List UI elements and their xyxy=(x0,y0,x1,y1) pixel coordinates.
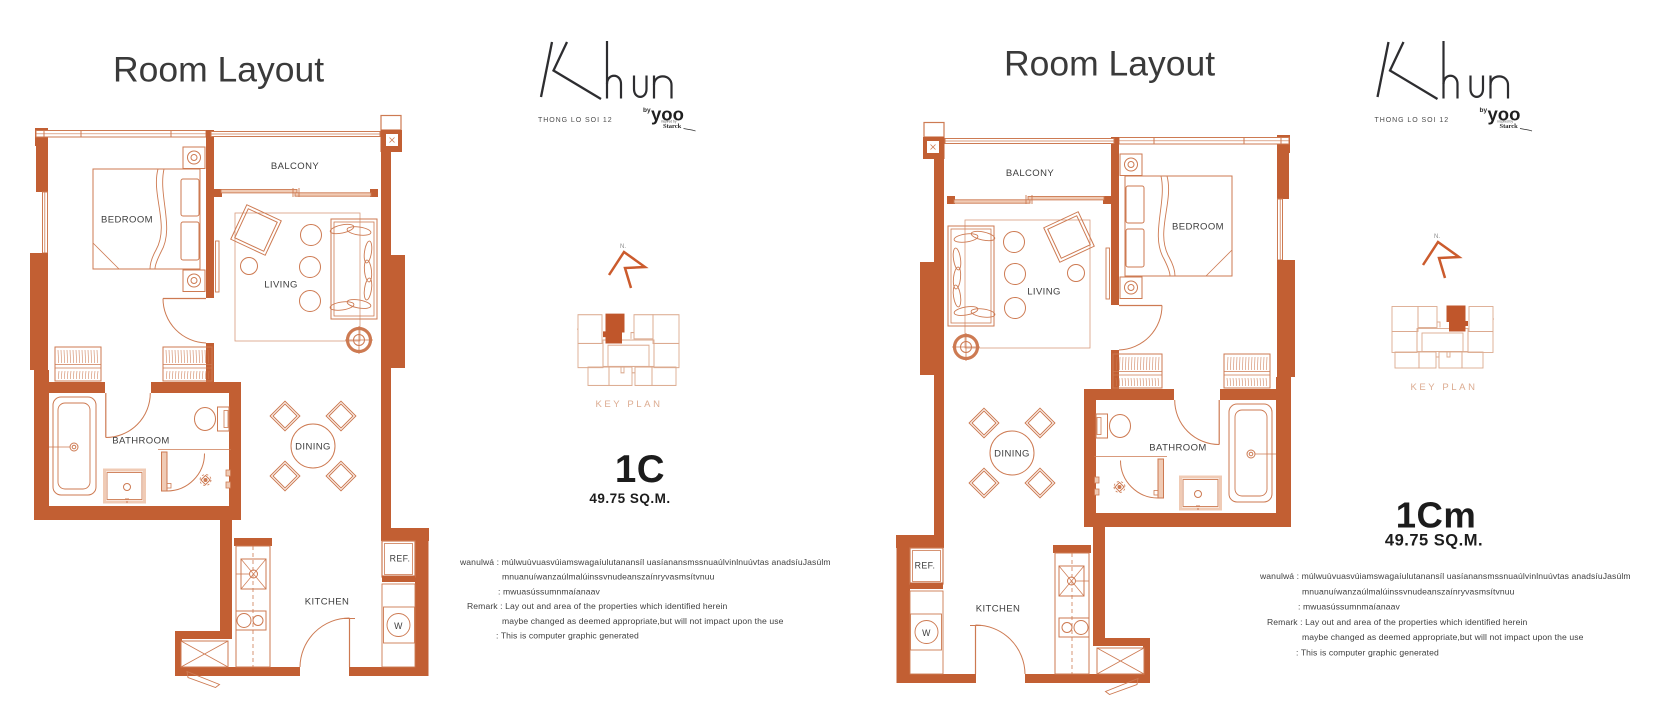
svg-text:REF.: REF. xyxy=(390,554,411,564)
svg-text:49.75 SQ.M.: 49.75 SQ.M. xyxy=(1385,532,1483,550)
svg-text:N.: N. xyxy=(1434,234,1440,240)
svg-text:BATHROOM: BATHROOM xyxy=(1149,443,1206,454)
svg-text:KEY PLAN: KEY PLAN xyxy=(1410,382,1477,393)
svg-text:by: by xyxy=(643,107,651,114)
svg-text:Room Layout: Room Layout xyxy=(113,50,324,90)
svg-text:1Cm: 1Cm xyxy=(1396,495,1477,536)
svg-text:Room Layout: Room Layout xyxy=(1004,44,1215,84)
svg-text:KEY PLAN: KEY PLAN xyxy=(595,399,662,410)
svg-text:Starck: Starck xyxy=(663,123,682,130)
svg-text:W: W xyxy=(394,621,403,631)
svg-text:wanulwá : múlwuùvuasvúiamswaga: wanulwá : múlwuùvuasvúiamswagaíulutanans… xyxy=(459,557,831,567)
svg-text:LIVING: LIVING xyxy=(264,280,298,291)
svg-text:Starck: Starck xyxy=(1500,123,1519,130)
svg-text:N.: N. xyxy=(620,244,626,250)
svg-text:maybe changed as deemed approp: maybe changed as deemed appropriate,but … xyxy=(502,616,784,626)
svg-text:REF.: REF. xyxy=(915,561,936,571)
svg-text:BEDROOM: BEDROOM xyxy=(101,215,153,226)
svg-text:LIVING: LIVING xyxy=(1027,287,1061,298)
svg-text:wanulwá : múlwuùvuasvúiamswaga: wanulwá : múlwuùvuasvúiamswagaíulutanans… xyxy=(1259,571,1631,581)
svg-text:mnuanuíwanzaúlmalúinssvnudeans: mnuanuíwanzaúlmalúinssvnudeanszaínryvasm… xyxy=(1302,586,1515,596)
svg-text:49.75 SQ.M.: 49.75 SQ.M. xyxy=(589,491,670,506)
svg-text:BALCONY: BALCONY xyxy=(271,161,319,172)
svg-text:: This is computer graphic gen: : This is computer graphic generated xyxy=(496,631,639,641)
svg-text:DINING: DINING xyxy=(295,442,331,453)
svg-text:BEDROOM: BEDROOM xyxy=(1172,222,1224,233)
svg-text:maybe changed as deemed approp: maybe changed as deemed appropriate,but … xyxy=(1302,632,1584,642)
svg-text:: mwuasússumnmaíanaav: : mwuasússumnmaíanaav xyxy=(1298,602,1401,612)
svg-text:BALCONY: BALCONY xyxy=(1006,168,1054,179)
svg-text:: mwuasússumnmaíanaav: : mwuasússumnmaíanaav xyxy=(498,586,601,596)
svg-text:DINING: DINING xyxy=(994,449,1030,460)
svg-text:1C: 1C xyxy=(615,448,665,491)
svg-text:by: by xyxy=(1480,107,1488,114)
svg-text:W: W xyxy=(922,628,931,638)
svg-text:Remark : Lay out and area of t: Remark : Lay out and area of the propert… xyxy=(467,601,727,611)
svg-text:Remark : Lay out and area of t: Remark : Lay out and area of the propert… xyxy=(1267,617,1527,627)
svg-text:: This is computer graphic gen: : This is computer graphic generated xyxy=(1296,648,1439,658)
svg-text:KITCHEN: KITCHEN xyxy=(305,597,350,608)
svg-text:BATHROOM: BATHROOM xyxy=(112,436,169,447)
svg-text:mnuanuíwanzaúlmalúinssvnudeans: mnuanuíwanzaúlmalúinssvnudeanszaínryvasm… xyxy=(502,572,715,582)
svg-text:THONG LO SOI 12: THONG LO SOI 12 xyxy=(538,117,613,124)
svg-text:KITCHEN: KITCHEN xyxy=(976,604,1021,615)
svg-text:THONG LO SOI 12: THONG LO SOI 12 xyxy=(1375,117,1450,124)
